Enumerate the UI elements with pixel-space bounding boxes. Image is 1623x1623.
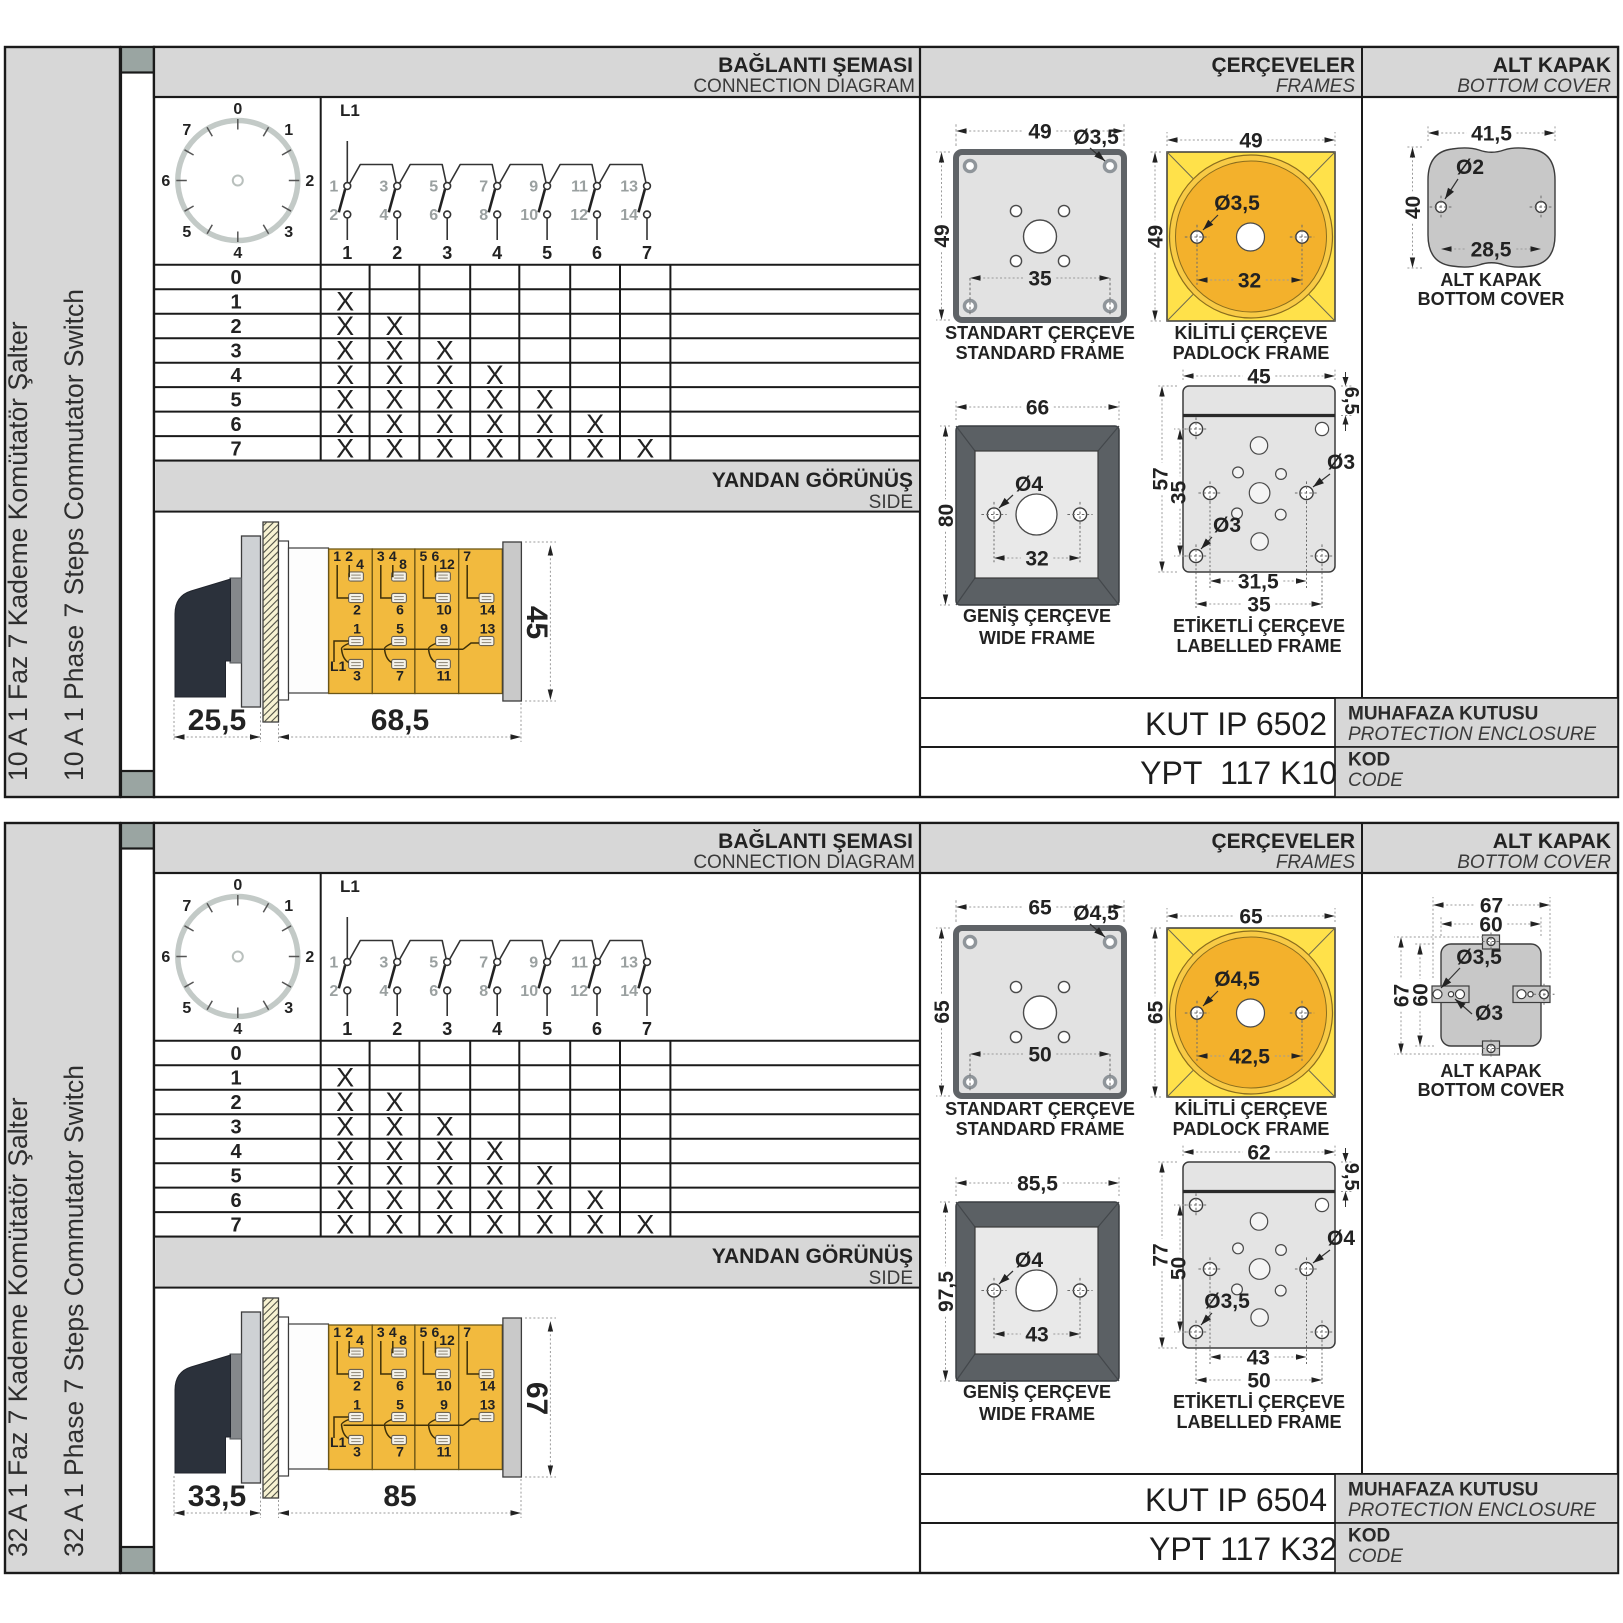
svg-text:10: 10: [436, 1378, 452, 1394]
svg-text:WIDE FRAME: WIDE FRAME: [979, 628, 1095, 648]
svg-text:9: 9: [529, 179, 538, 196]
svg-text:0: 0: [230, 267, 241, 289]
svg-text:2: 2: [345, 548, 353, 564]
svg-text:1: 1: [333, 548, 341, 564]
svg-text:60: 60: [1410, 983, 1433, 1006]
svg-text:4: 4: [492, 243, 502, 263]
svg-text:13: 13: [480, 1397, 496, 1413]
svg-text:5: 5: [396, 1397, 404, 1413]
svg-text:L1: L1: [330, 658, 347, 674]
svg-text:8: 8: [399, 556, 407, 572]
svg-text:8: 8: [479, 983, 488, 1000]
svg-text:X: X: [486, 1209, 504, 1239]
svg-text:10 A 1 Faz 7 Kademe Komütatör: 10 A 1 Faz 7 Kademe Komütatör Şalter: [3, 321, 33, 781]
svg-text:Ø4: Ø4: [1015, 1249, 1043, 1272]
svg-text:50: 50: [1247, 1370, 1270, 1393]
svg-text:10: 10: [520, 983, 538, 1000]
svg-text:7: 7: [642, 243, 652, 263]
svg-text:GENİŞ ÇERÇEVE: GENİŞ ÇERÇEVE: [963, 1382, 1111, 1402]
svg-text:3: 3: [377, 548, 385, 564]
svg-text:STANDART ÇERÇEVE: STANDART ÇERÇEVE: [945, 1099, 1135, 1119]
svg-text:GENİŞ ÇERÇEVE: GENİŞ ÇERÇEVE: [963, 606, 1111, 626]
svg-text:10: 10: [520, 207, 538, 224]
svg-text:35: 35: [1028, 268, 1052, 291]
svg-text:3: 3: [379, 179, 388, 196]
svg-text:7: 7: [463, 548, 471, 564]
svg-text:4: 4: [379, 983, 388, 1000]
svg-text:4: 4: [389, 1324, 397, 1340]
svg-text:Ø4: Ø4: [1015, 473, 1043, 496]
svg-text:PADLOCK FRAME: PADLOCK FRAME: [1173, 1119, 1330, 1139]
svg-text:LABELLED FRAME: LABELLED FRAME: [1177, 636, 1342, 656]
svg-text:PROTECTION ENCLOSURE: PROTECTION ENCLOSURE: [1348, 1500, 1596, 1521]
svg-text:X: X: [586, 433, 604, 463]
svg-text:33,5: 33,5: [188, 1480, 246, 1513]
svg-text:8: 8: [479, 207, 488, 224]
svg-text:WIDE FRAME: WIDE FRAME: [979, 1404, 1095, 1424]
svg-text:BOTTOM COVER: BOTTOM COVER: [1457, 76, 1611, 97]
svg-text:9: 9: [440, 621, 448, 637]
svg-text:1: 1: [284, 122, 293, 139]
svg-text:50: 50: [1028, 1044, 1051, 1067]
svg-text:25,5: 25,5: [188, 704, 246, 737]
svg-text:BOTTOM COVER: BOTTOM COVER: [1457, 852, 1611, 873]
svg-text:2: 2: [230, 316, 241, 338]
svg-text:45: 45: [520, 606, 553, 639]
svg-text:Ø3,5: Ø3,5: [1073, 126, 1119, 149]
svg-text:MUHAFAZA KUTUSU: MUHAFAZA KUTUSU: [1348, 704, 1538, 725]
svg-text:7: 7: [182, 122, 191, 139]
svg-text:50: 50: [1168, 1257, 1191, 1280]
svg-text:CODE: CODE: [1348, 1546, 1403, 1567]
svg-text:Ø3,5: Ø3,5: [1456, 946, 1502, 969]
svg-text:49: 49: [1239, 130, 1262, 153]
svg-text:12: 12: [439, 556, 455, 572]
svg-text:2: 2: [305, 173, 314, 190]
svg-text:7: 7: [230, 1214, 241, 1236]
svg-text:3: 3: [377, 1324, 385, 1340]
svg-text:1: 1: [284, 898, 293, 915]
svg-text:7: 7: [479, 955, 488, 972]
svg-text:3: 3: [353, 668, 361, 684]
svg-text:11: 11: [571, 955, 588, 972]
svg-text:1: 1: [230, 1067, 241, 1089]
svg-text:12: 12: [439, 1332, 455, 1348]
svg-text:60: 60: [1479, 914, 1502, 937]
svg-text:12: 12: [570, 983, 588, 1000]
svg-text:X: X: [586, 1209, 604, 1239]
svg-text:5: 5: [542, 243, 552, 263]
svg-text:3: 3: [230, 340, 241, 362]
svg-text:KUT IP 6504: KUT IP 6504: [1145, 1482, 1327, 1518]
svg-text:FRAMES: FRAMES: [1276, 852, 1356, 873]
svg-text:85: 85: [383, 1480, 416, 1513]
svg-text:L1: L1: [340, 877, 360, 896]
svg-text:5: 5: [429, 955, 438, 972]
svg-text:X: X: [336, 433, 354, 463]
svg-text:Ø4,5: Ø4,5: [1214, 968, 1260, 991]
svg-text:11: 11: [571, 179, 588, 196]
svg-text:YANDAN GÖRÜNÜŞ: YANDAN GÖRÜNÜŞ: [712, 1245, 913, 1268]
svg-text:3: 3: [284, 1000, 293, 1017]
svg-text:Ø3: Ø3: [1213, 514, 1241, 537]
svg-text:49: 49: [1028, 121, 1051, 144]
svg-text:4: 4: [389, 548, 397, 564]
svg-text:ALT KAPAK: ALT KAPAK: [1440, 1061, 1541, 1081]
svg-text:2: 2: [329, 983, 338, 1000]
svg-text:5: 5: [429, 179, 438, 196]
svg-text:13: 13: [620, 179, 638, 196]
svg-text:1: 1: [353, 1397, 361, 1413]
svg-text:3: 3: [379, 955, 388, 972]
svg-text:4: 4: [492, 1019, 502, 1039]
svg-text:3: 3: [442, 1019, 452, 1039]
svg-text:PADLOCK FRAME: PADLOCK FRAME: [1173, 343, 1330, 363]
svg-text:65: 65: [1145, 1001, 1168, 1025]
svg-text:32: 32: [1238, 270, 1261, 293]
svg-text:3: 3: [353, 1444, 361, 1460]
svg-text:STANDART ÇERÇEVE: STANDART ÇERÇEVE: [945, 323, 1135, 343]
svg-text:65: 65: [1239, 906, 1263, 929]
svg-text:6: 6: [396, 1378, 404, 1394]
svg-text:BOTTOM COVER: BOTTOM COVER: [1418, 1080, 1565, 1100]
svg-text:1: 1: [342, 243, 352, 263]
svg-text:6: 6: [429, 983, 438, 1000]
svg-text:X: X: [536, 1209, 554, 1239]
svg-text:10 A 1 Phase 7 Steps Commutato: 10 A 1 Phase 7 Steps Commutator Switch: [59, 289, 89, 781]
svg-text:BAĞLANTI ŞEMASI: BAĞLANTI ŞEMASI: [718, 53, 913, 77]
svg-text:28,5: 28,5: [1471, 239, 1512, 262]
svg-text:Ø4,5: Ø4,5: [1073, 902, 1119, 925]
svg-text:42,5: 42,5: [1229, 1046, 1270, 1069]
svg-text:FRAMES: FRAMES: [1276, 76, 1356, 97]
svg-text:BOTTOM COVER: BOTTOM COVER: [1418, 289, 1565, 309]
svg-text:7: 7: [463, 1324, 471, 1340]
svg-text:4: 4: [379, 207, 388, 224]
svg-text:43: 43: [1247, 1347, 1270, 1370]
svg-text:PROTECTION ENCLOSURE: PROTECTION ENCLOSURE: [1348, 724, 1596, 745]
svg-text:SIDE: SIDE: [869, 492, 913, 513]
svg-text:1: 1: [230, 291, 241, 313]
svg-text:BAĞLANTI ŞEMASI: BAĞLANTI ŞEMASI: [718, 829, 913, 853]
svg-text:KİLİTLİ ÇERÇEVE: KİLİTLİ ÇERÇEVE: [1174, 1099, 1327, 1119]
svg-text:X: X: [636, 1209, 654, 1239]
svg-text:7: 7: [230, 438, 241, 460]
svg-text:X: X: [486, 433, 504, 463]
svg-text:97,5: 97,5: [935, 1271, 958, 1312]
svg-text:KİLİTLİ ÇERÇEVE: KİLİTLİ ÇERÇEVE: [1174, 323, 1327, 343]
svg-text:35: 35: [1168, 481, 1191, 505]
svg-text:41,5: 41,5: [1471, 123, 1512, 146]
svg-text:1: 1: [329, 179, 338, 196]
svg-text:X: X: [436, 433, 454, 463]
svg-text:ALT KAPAK: ALT KAPAK: [1440, 270, 1541, 290]
svg-text:KOD: KOD: [1348, 1526, 1390, 1547]
svg-text:2: 2: [345, 1324, 353, 1340]
svg-text:11: 11: [437, 668, 452, 684]
svg-text:6: 6: [429, 207, 438, 224]
svg-text:7: 7: [396, 1444, 404, 1460]
svg-text:8: 8: [399, 1332, 407, 1348]
svg-text:YPT 117 K10: YPT 117 K10: [1140, 755, 1337, 791]
svg-text:7: 7: [642, 1019, 652, 1039]
svg-text:4: 4: [230, 1141, 242, 1163]
svg-text:ETİKETLİ ÇERÇEVE: ETİKETLİ ÇERÇEVE: [1173, 616, 1345, 636]
svg-text:32: 32: [1025, 548, 1048, 571]
svg-text:ÇERÇEVELER: ÇERÇEVELER: [1211, 830, 1355, 853]
svg-text:ETİKETLİ ÇERÇEVE: ETİKETLİ ÇERÇEVE: [1173, 1392, 1345, 1412]
svg-text:65: 65: [1028, 897, 1052, 920]
svg-text:11: 11: [437, 1444, 452, 1460]
svg-text:5: 5: [542, 1019, 552, 1039]
svg-text:5: 5: [230, 1165, 241, 1187]
svg-text:X: X: [336, 1209, 354, 1239]
svg-text:CONNECTION DIAGRAM: CONNECTION DIAGRAM: [693, 76, 915, 97]
svg-text:CONNECTION DIAGRAM: CONNECTION DIAGRAM: [693, 852, 915, 873]
svg-text:32 A 1 Phase 7 Steps Commutato: 32 A 1 Phase 7 Steps Commutator Switch: [59, 1065, 89, 1557]
svg-text:STANDARD FRAME: STANDARD FRAME: [956, 343, 1125, 363]
svg-text:4: 4: [233, 245, 242, 262]
svg-text:62: 62: [1247, 1142, 1270, 1165]
svg-text:5: 5: [230, 389, 241, 411]
svg-text:2: 2: [392, 1019, 402, 1039]
svg-text:Ø2: Ø2: [1456, 156, 1484, 179]
svg-text:85,5: 85,5: [1017, 1173, 1058, 1196]
svg-text:L1: L1: [340, 101, 360, 120]
svg-text:3: 3: [230, 1116, 241, 1138]
svg-text:68,5: 68,5: [371, 704, 429, 737]
svg-text:5: 5: [182, 224, 191, 241]
svg-text:6: 6: [230, 1190, 241, 1212]
svg-text:49: 49: [1145, 225, 1168, 248]
svg-text:YANDAN GÖRÜNÜŞ: YANDAN GÖRÜNÜŞ: [712, 469, 913, 492]
svg-text:0: 0: [233, 101, 242, 118]
svg-text:67: 67: [520, 1382, 553, 1415]
svg-text:1: 1: [353, 621, 361, 637]
svg-text:3: 3: [284, 224, 293, 241]
svg-text:7: 7: [479, 179, 488, 196]
svg-text:66: 66: [1026, 397, 1049, 420]
svg-text:9: 9: [440, 1397, 448, 1413]
svg-text:14: 14: [620, 983, 638, 1000]
svg-text:5: 5: [182, 1000, 191, 1017]
svg-text:13: 13: [620, 955, 638, 972]
svg-text:6: 6: [161, 949, 170, 966]
svg-text:ÇERÇEVELER: ÇERÇEVELER: [1211, 54, 1355, 77]
svg-text:KUT IP 6502: KUT IP 6502: [1145, 706, 1327, 742]
svg-text:X: X: [536, 433, 554, 463]
svg-text:6: 6: [592, 1019, 602, 1039]
svg-text:6: 6: [592, 243, 602, 263]
svg-text:45: 45: [1247, 366, 1271, 389]
svg-text:9,5: 9,5: [1340, 1163, 1362, 1191]
svg-text:6,5: 6,5: [1340, 387, 1362, 415]
svg-text:7: 7: [396, 668, 404, 684]
svg-text:49: 49: [931, 224, 954, 247]
svg-text:Ø3: Ø3: [1475, 1002, 1503, 1025]
svg-text:4: 4: [230, 365, 242, 387]
svg-text:ALT KAPAK: ALT KAPAK: [1493, 54, 1611, 77]
svg-text:9: 9: [529, 955, 538, 972]
svg-text:80: 80: [935, 504, 958, 527]
svg-text:5: 5: [420, 548, 428, 564]
svg-text:L1: L1: [330, 1434, 347, 1450]
svg-text:X: X: [436, 1209, 454, 1239]
svg-text:14: 14: [620, 207, 638, 224]
svg-text:KOD: KOD: [1348, 750, 1390, 771]
svg-text:10: 10: [436, 602, 452, 618]
svg-text:12: 12: [570, 207, 588, 224]
svg-text:6: 6: [230, 414, 241, 436]
svg-text:14: 14: [480, 1378, 496, 1394]
svg-text:5: 5: [396, 621, 404, 637]
svg-text:7: 7: [182, 898, 191, 915]
svg-text:4: 4: [233, 1021, 242, 1038]
svg-text:43: 43: [1025, 1324, 1048, 1347]
svg-text:1: 1: [329, 955, 338, 972]
svg-text:YPT 117 K32: YPT 117 K32: [1149, 1531, 1337, 1567]
svg-text:X: X: [385, 433, 403, 463]
svg-text:2: 2: [353, 1378, 361, 1394]
svg-text:13: 13: [480, 621, 496, 637]
svg-text:4: 4: [356, 1332, 364, 1348]
svg-text:LABELLED FRAME: LABELLED FRAME: [1177, 1412, 1342, 1432]
svg-text:2: 2: [230, 1092, 241, 1114]
svg-text:Ø3,5: Ø3,5: [1214, 192, 1260, 215]
svg-text:X: X: [385, 1209, 403, 1239]
svg-text:X: X: [636, 433, 654, 463]
svg-text:6: 6: [161, 173, 170, 190]
svg-text:6: 6: [396, 602, 404, 618]
svg-text:14: 14: [480, 602, 496, 618]
svg-text:Ø4: Ø4: [1327, 1227, 1355, 1250]
svg-text:Ø3: Ø3: [1327, 451, 1355, 474]
svg-text:ALT KAPAK: ALT KAPAK: [1493, 830, 1611, 853]
svg-text:35: 35: [1247, 594, 1271, 617]
svg-text:1: 1: [342, 1019, 352, 1039]
svg-text:CODE: CODE: [1348, 770, 1403, 791]
svg-text:3: 3: [442, 243, 452, 263]
svg-text:31,5: 31,5: [1238, 571, 1279, 594]
svg-text:2: 2: [353, 602, 361, 618]
svg-text:2: 2: [392, 243, 402, 263]
svg-text:2: 2: [305, 949, 314, 966]
svg-text:0: 0: [233, 877, 242, 894]
svg-text:0: 0: [230, 1043, 241, 1065]
svg-text:MUHAFAZA KUTUSU: MUHAFAZA KUTUSU: [1348, 1480, 1538, 1501]
svg-text:32 A 1 Faz 7 Kademe Komütatör: 32 A 1 Faz 7 Kademe Komütatör Şalter: [3, 1097, 33, 1557]
svg-text:5: 5: [420, 1324, 428, 1340]
svg-text:1: 1: [333, 1324, 341, 1340]
svg-text:65: 65: [931, 1000, 954, 1024]
svg-text:40: 40: [1402, 196, 1425, 219]
svg-text:Ø3,5: Ø3,5: [1204, 1290, 1250, 1313]
svg-text:STANDARD FRAME: STANDARD FRAME: [956, 1119, 1125, 1139]
svg-text:4: 4: [356, 556, 364, 572]
svg-text:SIDE: SIDE: [869, 1268, 913, 1289]
svg-text:2: 2: [329, 207, 338, 224]
